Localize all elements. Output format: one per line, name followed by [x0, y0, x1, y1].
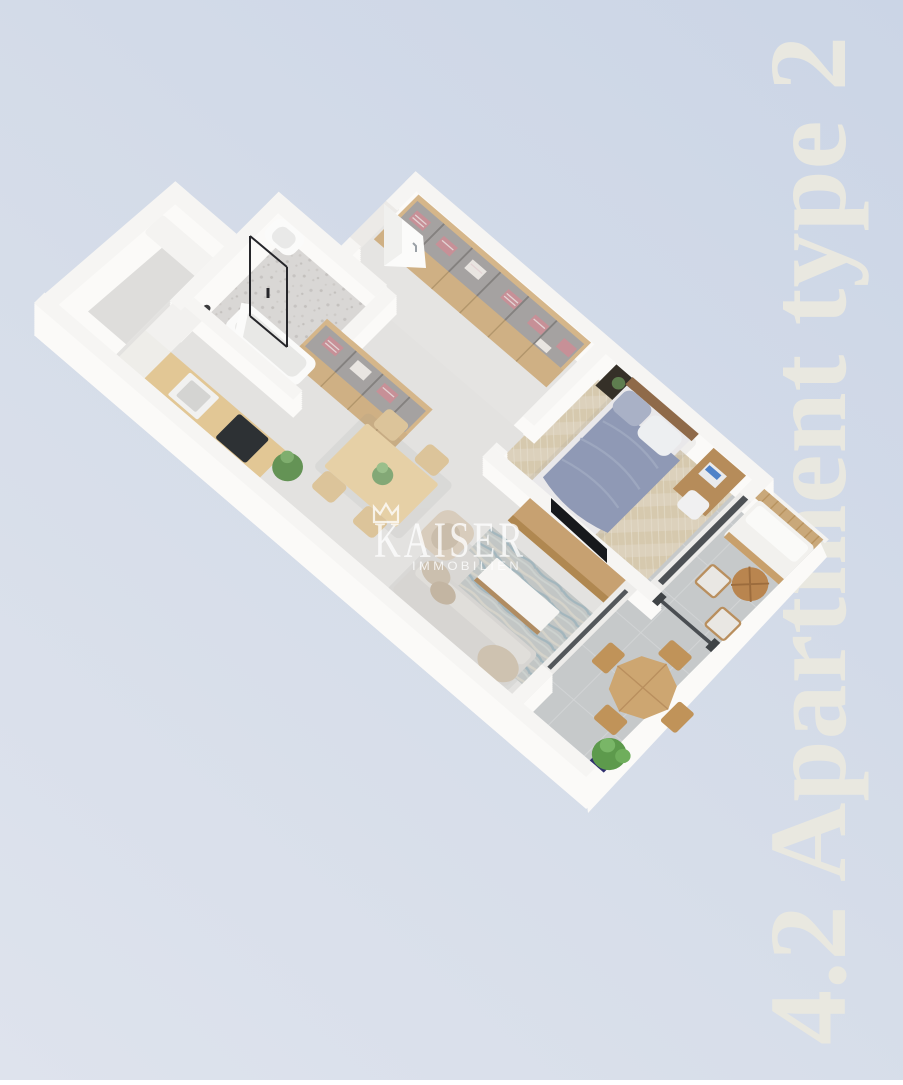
svg-text:IMMOBILIEN: IMMOBILIEN — [412, 559, 522, 573]
